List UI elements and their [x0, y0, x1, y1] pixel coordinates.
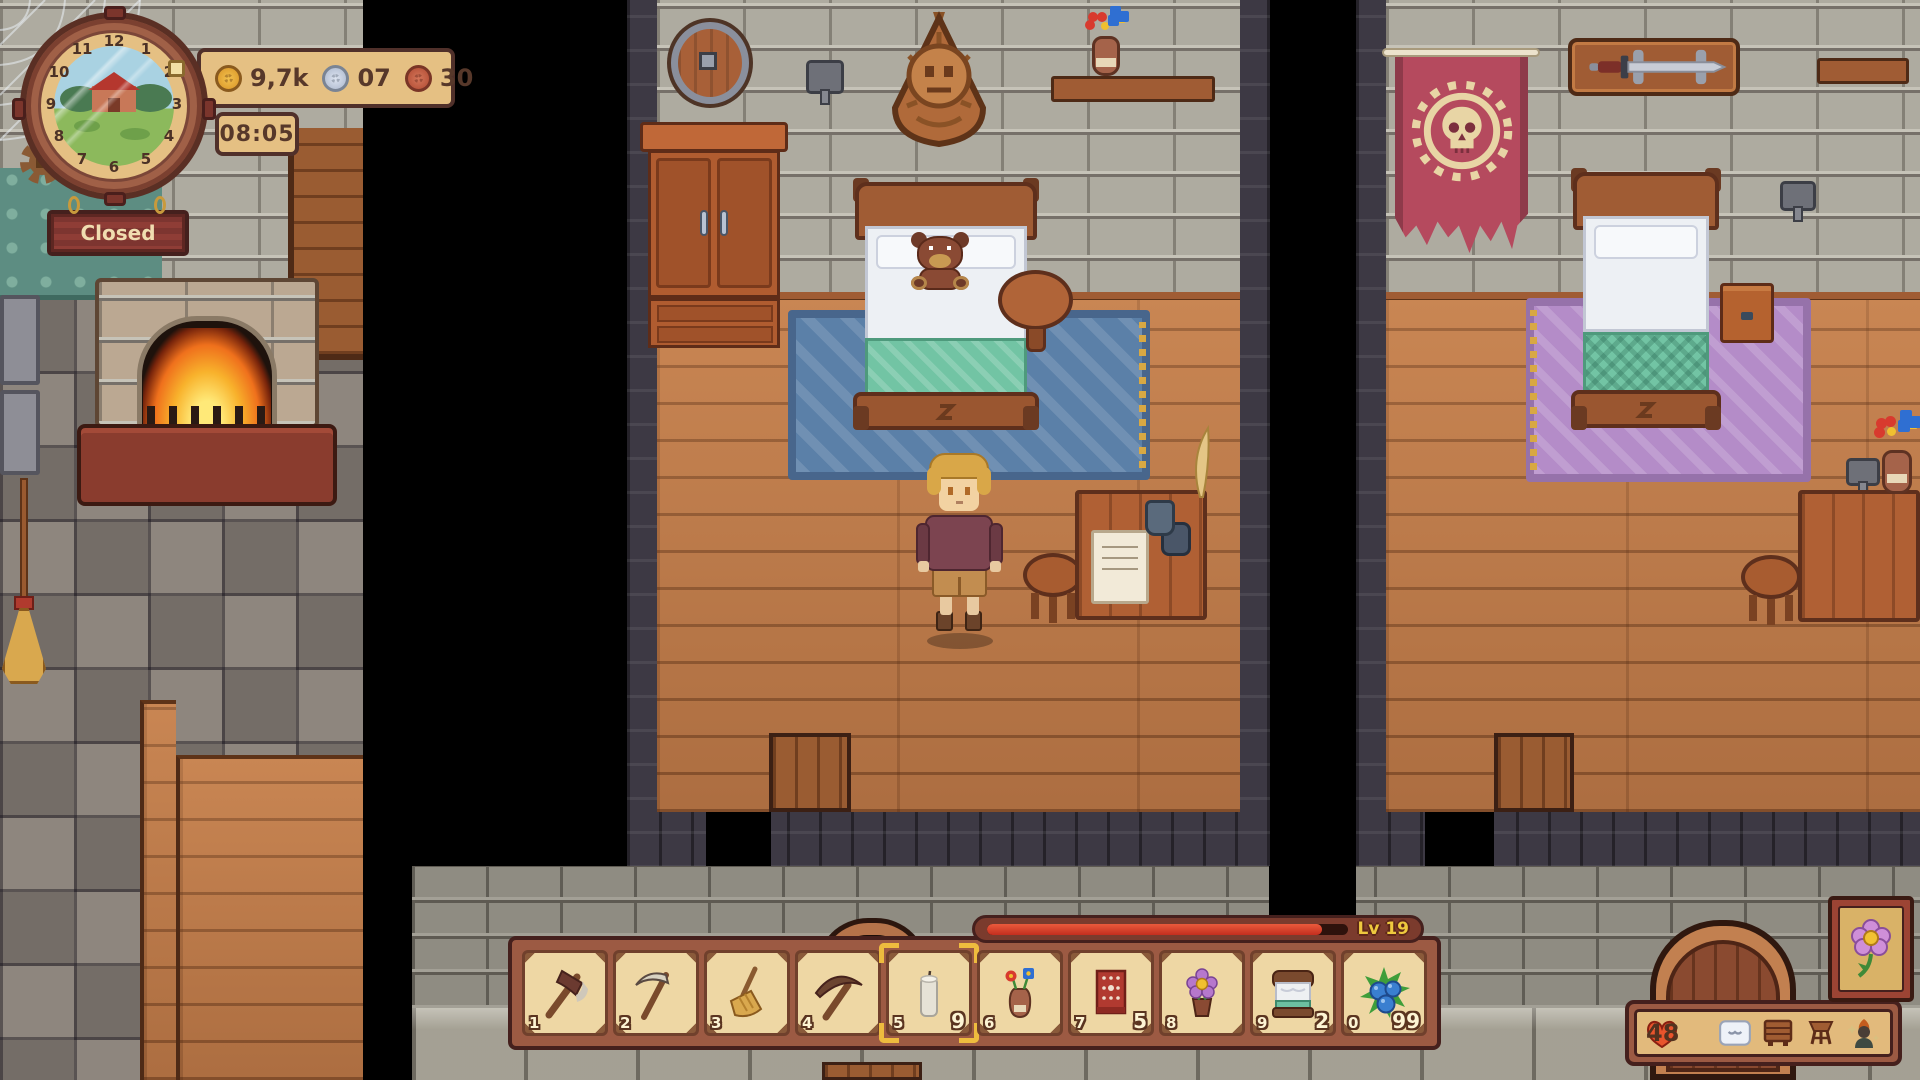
stool-middle[interactable] — [1023, 553, 1083, 627]
fireplace[interactable] — [77, 278, 337, 506]
gold-amount: 9,7k — [250, 64, 308, 92]
clock-numeral: 4 — [164, 127, 174, 145]
hotbar-slot-3[interactable]: 3 — [704, 950, 790, 1036]
vase-on-desk — [1874, 408, 1920, 496]
pillow-icon[interactable] — [1718, 1018, 1752, 1048]
clock-widget[interactable]: 12 1 2 3 4 5 6 7 8 9 10 11 — [16, 8, 216, 223]
clock-numeral: 9 — [46, 95, 56, 113]
sword-icon — [1576, 48, 1732, 86]
dresser-icon[interactable] — [1761, 1018, 1795, 1048]
health-value: 48 — [1646, 1019, 1679, 1047]
left-shelf-b — [0, 390, 40, 475]
copper-coin-icon — [405, 65, 432, 92]
wall-satchel — [1145, 500, 1175, 536]
bed-item-icon — [1263, 963, 1323, 1023]
hearth — [77, 424, 337, 506]
sword-plaque — [1568, 38, 1740, 96]
time-value: 08:05 — [219, 122, 294, 147]
red-flower-icon — [1088, 12, 1098, 22]
bed-right[interactable] — [1571, 168, 1721, 430]
flower-vase-icon — [990, 963, 1050, 1023]
clock-numeral: 12 — [104, 32, 125, 50]
clock-numeral: 8 — [54, 127, 64, 145]
hotbar-slot-2[interactable]: 2 — [613, 950, 699, 1036]
hotbar-slot-8[interactable]: 8 — [1159, 950, 1245, 1036]
vase-on-shelf — [1082, 6, 1130, 78]
doorway-floor[interactable] — [769, 733, 851, 812]
wood-step — [140, 700, 176, 1080]
wall-sconce-icon — [1780, 181, 1816, 211]
clock-numeral: 1 — [141, 40, 151, 58]
zzz-carving-icon — [908, 400, 984, 426]
nightstand[interactable] — [1720, 283, 1774, 343]
zzz-carving-icon — [1608, 398, 1684, 424]
closed-sign-label: Closed — [80, 221, 155, 245]
clock-numeral: 11 — [72, 40, 93, 58]
wall-shelf-right — [1817, 58, 1909, 84]
pickaxe-icon — [808, 963, 868, 1023]
open-book — [1091, 530, 1149, 604]
clock-hand-marker — [168, 60, 185, 77]
teddy-bear[interactable] — [909, 232, 971, 294]
hotbar-slot-5[interactable]: 5 9 — [886, 950, 972, 1036]
red-cloth-icon — [1081, 963, 1141, 1023]
axe-icon — [535, 963, 595, 1023]
wardrobe[interactable] — [640, 122, 788, 350]
room-right — [1356, 0, 1920, 868]
chain-link-icon — [68, 196, 80, 214]
hotbar-slot-7[interactable]: 7 5 — [1068, 950, 1154, 1036]
red-flower-icon — [1876, 418, 1887, 429]
clock-numeral: 7 — [77, 150, 87, 168]
room-middle — [627, 0, 1270, 868]
scythe-icon — [626, 963, 686, 1023]
xp-fill — [987, 924, 1322, 935]
xp-bar: Lv 19 — [972, 915, 1424, 943]
wall-sconce-icon — [806, 60, 844, 94]
player-character[interactable] — [915, 455, 1005, 651]
flower-frame-button[interactable] — [1828, 896, 1914, 1002]
clock-scene — [54, 46, 174, 166]
broom[interactable] — [0, 478, 52, 688]
desk-middle[interactable] — [1075, 490, 1207, 620]
candle-icon — [899, 963, 959, 1023]
hotbar-slot-6[interactable]: 6 — [977, 950, 1063, 1036]
clock-numeral: 3 — [172, 95, 182, 113]
chain-link-icon — [154, 196, 166, 214]
doorway-floor[interactable] — [1494, 733, 1574, 812]
level-badge: Lv 19 — [1358, 919, 1410, 939]
time-display: 08:05 — [215, 112, 299, 156]
round-side-table[interactable] — [998, 270, 1073, 355]
hotbar-slot-4[interactable]: 4 — [795, 950, 881, 1036]
clock-numeral: 10 — [49, 63, 70, 81]
left-shelf-a — [0, 295, 40, 385]
ladder — [822, 1062, 922, 1080]
carved-sun-emblem — [883, 10, 995, 150]
clock-numeral: 5 — [141, 150, 151, 168]
blue-flower-icon — [1900, 410, 1912, 422]
gold-coin-icon — [215, 65, 242, 92]
banner-rod — [1382, 48, 1540, 57]
currency-bar: 9,7k 07 30 — [197, 48, 455, 108]
status-bar: 48 — [1625, 1000, 1902, 1066]
xp-track — [987, 924, 1348, 935]
skull-banner — [1395, 57, 1528, 253]
flower-icon — [1843, 916, 1899, 982]
hotbar: 1 2 3 4 — [508, 936, 1441, 1050]
broom-icon — [717, 963, 777, 1023]
stool-icon[interactable] — [1804, 1018, 1838, 1048]
hotbar-slot-1[interactable]: 1 — [522, 950, 608, 1036]
copper-amount: 30 — [440, 64, 473, 92]
villager-icon[interactable] — [1847, 1017, 1881, 1049]
hotbar-slot-10[interactable]: 0 99 — [1341, 950, 1427, 1036]
shirt — [925, 515, 993, 571]
skull-emblem-icon — [1410, 79, 1514, 183]
desk-right[interactable] — [1798, 490, 1920, 622]
potted-flower-icon — [1172, 963, 1232, 1023]
wood-landing — [175, 755, 363, 1080]
quill-icon — [1187, 425, 1213, 501]
clock-numeral: 6 — [109, 158, 119, 176]
silver-amount: 07 — [357, 64, 390, 92]
hotbar-slot-9[interactable]: 9 2 — [1250, 950, 1336, 1036]
stool-right[interactable] — [1741, 555, 1801, 627]
game-viewport: 12 1 2 3 4 5 6 7 8 9 10 11 9,7k 07 30 — [0, 0, 1920, 1080]
wall-shelf — [1051, 76, 1215, 102]
silver-coin-icon — [322, 65, 349, 92]
blue-flower-icon — [1110, 6, 1121, 17]
